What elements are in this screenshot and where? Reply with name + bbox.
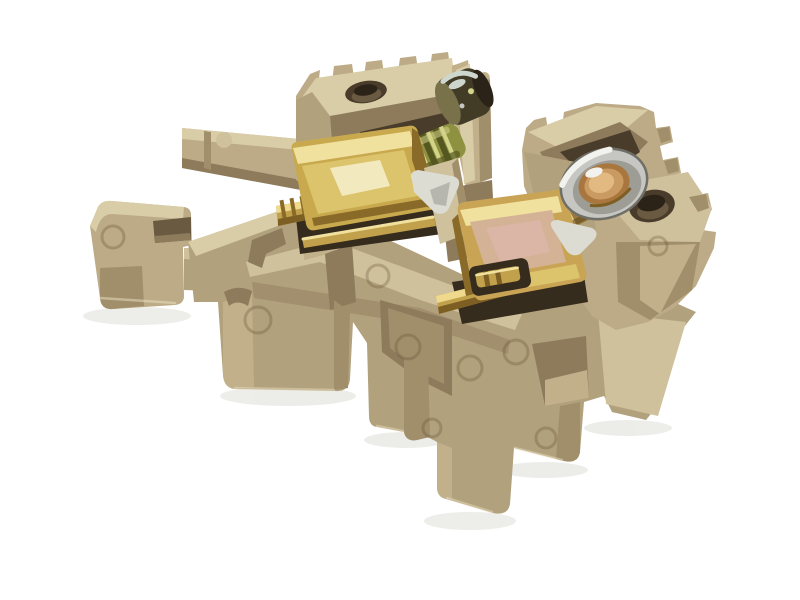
- shadow: [83, 307, 191, 325]
- leg-b-side: [404, 352, 430, 440]
- shadow: [500, 462, 588, 478]
- terminal-block-photo: [0, 0, 800, 600]
- left-din-clip: [90, 201, 192, 309]
- shadow: [424, 512, 516, 530]
- clip-shaded-face: [100, 266, 144, 309]
- foot-a-side: [334, 300, 350, 390]
- foot-c-light: [437, 442, 452, 500]
- arm-nub: [216, 132, 232, 148]
- front-slot: [325, 244, 356, 310]
- foot-a-light: [223, 294, 254, 389]
- arm-groove: [204, 131, 211, 170]
- shadow: [584, 420, 672, 436]
- product-photo: [0, 0, 800, 600]
